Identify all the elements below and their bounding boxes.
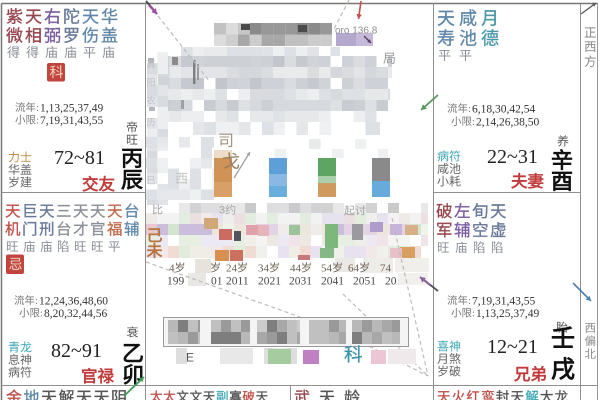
svg-text:庙: 庙 — [23, 236, 36, 255]
svg-text:历: 历 — [147, 116, 156, 129]
svg-text:庙: 庙 — [102, 42, 115, 61]
svg-text:天: 天 — [437, 386, 451, 400]
svg-text:20: 20 — [385, 275, 397, 287]
svg-text:陷: 陷 — [57, 236, 70, 255]
svg-text:兄弟: 兄弟 — [513, 361, 547, 385]
svg-text:1,13,25,37,49: 1,13,25,37,49 — [476, 308, 540, 320]
svg-text:寡: 寡 — [229, 386, 242, 400]
svg-text:天: 天 — [41, 384, 57, 400]
svg-text:2,14,26,38,50: 2,14,26,38,50 — [476, 116, 540, 128]
svg-text:科: 科 — [50, 62, 64, 82]
svg-text:2011: 2011 — [226, 275, 249, 287]
svg-text:戈: 戈 — [222, 148, 240, 174]
svg-text:辰: 辰 — [121, 162, 144, 194]
svg-text:8,20,32,44,56: 8,20,32,44,56 — [44, 308, 108, 320]
svg-text:地: 地 — [24, 384, 40, 400]
svg-text:岁: 岁 — [210, 260, 221, 276]
svg-text:陷: 陷 — [491, 237, 504, 256]
svg-text:平: 平 — [438, 45, 451, 64]
svg-text:农: 农 — [147, 94, 156, 107]
svg-text:平: 平 — [459, 45, 472, 64]
svg-text:鸾: 鸾 — [481, 386, 495, 400]
svg-text:岁建: 岁建 — [8, 173, 32, 190]
svg-text:平: 平 — [83, 42, 96, 61]
svg-text:破: 破 — [242, 386, 255, 400]
svg-text:2031: 2031 — [289, 275, 312, 287]
svg-text:太: 太 — [163, 386, 176, 400]
svg-text:旺: 旺 — [91, 236, 104, 255]
svg-text:庙: 庙 — [40, 236, 53, 255]
svg-text:阴: 阴 — [111, 384, 127, 400]
svg-text:74: 74 — [380, 260, 392, 276]
svg-text:天: 天 — [94, 384, 110, 400]
svg-text:小限:: 小限: — [19, 306, 43, 321]
svg-text:方: 方 — [584, 51, 597, 70]
svg-text:局: 局 — [383, 48, 396, 67]
svg-text:天: 天 — [76, 384, 92, 400]
svg-text:7,19,31,43,55: 7,19,31,43,55 — [40, 115, 104, 127]
svg-text:得: 得 — [26, 42, 39, 61]
svg-text:龙: 龙 — [555, 386, 569, 400]
svg-text:夫妻: 夫妻 — [511, 168, 544, 192]
svg-text:交友: 交友 — [82, 171, 116, 195]
svg-text:阳: 阳 — [147, 76, 156, 89]
svg-text:大: 大 — [540, 386, 554, 400]
svg-text:解: 解 — [525, 386, 539, 400]
svg-text:文: 文 — [176, 386, 189, 400]
svg-text:庙: 庙 — [64, 42, 77, 61]
svg-text:小限:: 小限: — [451, 306, 475, 321]
svg-text:6,18,30,42,54: 6,18,30,42,54 — [472, 103, 536, 115]
svg-text:科: 科 — [344, 341, 363, 367]
svg-text:忌: 忌 — [9, 254, 23, 274]
svg-text:旺: 旺 — [6, 236, 19, 255]
svg-text:天: 天 — [511, 386, 525, 400]
svg-text:龄: 龄 — [344, 384, 360, 400]
svg-text:岁破: 岁破 — [437, 362, 461, 379]
svg-text:44岁: 44岁 — [290, 260, 312, 276]
svg-text:得: 得 — [7, 42, 20, 61]
svg-text:庙: 庙 — [45, 42, 58, 61]
svg-text:真: 真 — [147, 58, 156, 71]
svg-text:4岁: 4岁 — [169, 260, 186, 276]
svg-text:天: 天 — [319, 384, 335, 400]
svg-text:天: 天 — [256, 386, 269, 400]
svg-text:天: 天 — [203, 386, 216, 400]
svg-text:小耗: 小耗 — [437, 172, 461, 189]
svg-text:22~31: 22~31 — [487, 146, 538, 168]
svg-text:34岁: 34岁 — [258, 260, 280, 276]
svg-text:北: 北 — [585, 346, 597, 362]
svg-text:比: 比 — [152, 202, 163, 218]
svg-text:E: E — [186, 350, 194, 364]
svg-text:武: 武 — [294, 384, 310, 400]
svg-text:红: 红 — [466, 386, 480, 400]
svg-text:陷: 陷 — [473, 237, 486, 256]
svg-text:82~91: 82~91 — [51, 340, 102, 362]
svg-text:解: 解 — [59, 384, 75, 400]
svg-text:小限:: 小限: — [15, 113, 39, 128]
svg-text:副: 副 — [216, 386, 229, 400]
svg-text:起讨: 起讨 — [344, 203, 366, 219]
svg-text:2021: 2021 — [258, 275, 281, 287]
svg-text:1,13,25,37,49: 1,13,25,37,49 — [40, 102, 104, 114]
svg-text:文: 文 — [190, 386, 203, 400]
svg-text:辅: 辅 — [124, 217, 140, 239]
svg-text:72~81: 72~81 — [54, 147, 105, 169]
svg-text:金: 金 — [6, 384, 22, 400]
svg-text:西: 西 — [175, 168, 188, 187]
svg-text:24岁: 24岁 — [226, 260, 248, 276]
svg-text:12~21: 12~21 — [487, 336, 538, 358]
svg-text:小限:: 小限: — [451, 114, 475, 129]
svg-text:巳: 巳 — [147, 174, 156, 187]
svg-text:火: 火 — [452, 386, 466, 400]
svg-text:壬: 壬 — [551, 319, 575, 354]
svg-text:oro 136.8: oro 136.8 — [335, 26, 378, 37]
svg-text:2041: 2041 — [321, 275, 344, 287]
svg-text:庙: 庙 — [455, 237, 468, 256]
svg-text:旺: 旺 — [437, 237, 450, 256]
svg-text:64岁: 64岁 — [348, 260, 370, 276]
svg-text:德: 德 — [481, 25, 499, 51]
svg-text:病符: 病符 — [8, 363, 32, 380]
svg-text:12,24,36,48,60: 12,24,36,48,60 — [39, 295, 108, 307]
svg-text:7,19,31,43,55: 7,19,31,43,55 — [472, 295, 536, 307]
svg-text:封: 封 — [496, 386, 510, 400]
svg-text:54岁: 54岁 — [321, 260, 343, 276]
svg-text:未: 未 — [147, 237, 163, 261]
svg-text:3约: 3约 — [219, 204, 236, 217]
svg-text:酉: 酉 — [551, 164, 573, 196]
svg-text:太: 太 — [150, 386, 163, 400]
svg-text:旺: 旺 — [74, 236, 87, 255]
svg-text:戌: 戌 — [551, 350, 575, 385]
svg-text:2051: 2051 — [353, 275, 376, 287]
svg-text:平: 平 — [108, 236, 121, 255]
svg-text:199: 199 — [167, 275, 185, 287]
